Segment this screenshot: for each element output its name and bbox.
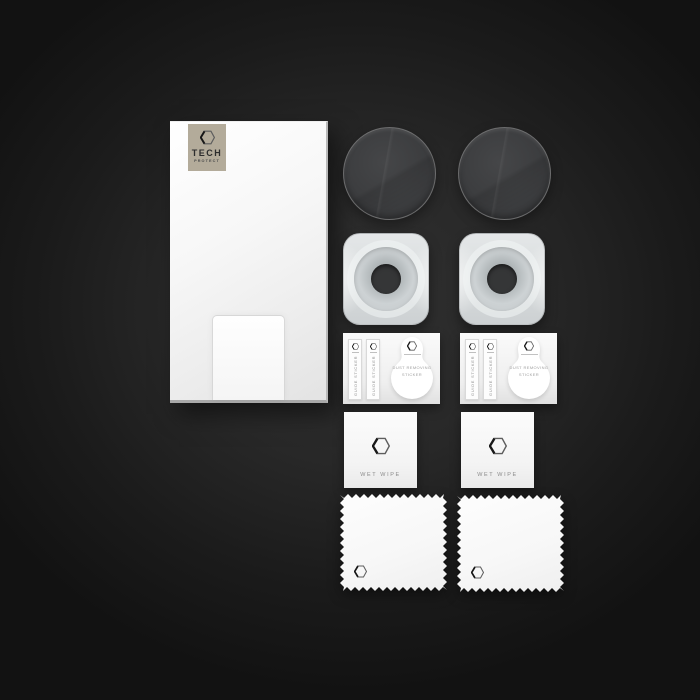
hexagon-logo-icon — [354, 565, 367, 578]
dust-removing-label: DUST REMOVING STICKER — [393, 365, 432, 379]
wet-wipe-label: WET WIPE — [477, 472, 518, 478]
protector-envelope: TECH PROTECT — [170, 121, 328, 403]
brand-hexagon-icon — [200, 130, 215, 145]
brand-badge: TECH PROTECT — [188, 124, 226, 171]
dust-removing-sticker: DUST REMOVING STICKER — [503, 335, 555, 401]
hexagon-logo-icon — [471, 566, 484, 579]
wet-wipe-1: WET WIPE — [344, 412, 417, 488]
microfiber-cloth-2 — [457, 495, 564, 592]
guide-sticker-label: GUIDE STICKER — [371, 353, 376, 399]
hexagon-logo-icon — [352, 343, 359, 350]
envelope-pull-tab — [212, 315, 285, 400]
guide-sticker-strip: GUIDE STICKER — [366, 339, 380, 400]
applicator-tray-1 — [343, 233, 429, 325]
guide-sticker-label: GUIDE STICKER — [488, 353, 493, 399]
hexagon-logo-icon — [489, 437, 507, 455]
stage: TECH PROTECT GUIDE STICKER — [0, 0, 700, 700]
dust-removing-label: DUST REMOVING STICKER — [510, 365, 549, 379]
lens-glass-2 — [458, 127, 551, 220]
sticker-sheet-2: GUIDE STICKER GUIDE STICKER DUST REMOVIN… — [460, 333, 557, 404]
dust-removing-line1: DUST REMOVING — [510, 365, 549, 370]
guide-sticker-label: GUIDE STICKER — [470, 353, 475, 399]
applicator-hole — [487, 264, 517, 294]
cloth-surface — [457, 495, 564, 592]
brand-name: TECH — [192, 149, 223, 158]
dust-removing-sticker: DUST REMOVING STICKER — [386, 335, 438, 401]
guide-sticker-strip: GUIDE STICKER — [348, 339, 362, 400]
wet-wipe-label: WET WIPE — [360, 472, 401, 478]
applicator-ring — [354, 247, 418, 311]
guide-sticker-strip: GUIDE STICKER — [483, 339, 497, 400]
applicator-hole — [371, 264, 401, 294]
hexagon-logo-icon — [469, 343, 476, 350]
sticker-sheet-1: GUIDE STICKER GUIDE STICKER DUST REMOVIN… — [343, 333, 440, 404]
applicator-tray-2 — [459, 233, 545, 325]
divider — [404, 354, 421, 355]
hexagon-logo-icon — [487, 343, 494, 350]
brand-subname: PROTECT — [194, 160, 220, 164]
hexagon-logo-icon — [524, 341, 534, 351]
lens-glass-1 — [343, 127, 436, 220]
hexagon-logo-icon — [370, 343, 377, 350]
hexagon-logo-icon — [407, 341, 417, 351]
guide-sticker-strip: GUIDE STICKER — [465, 339, 479, 400]
cloth-surface — [340, 494, 447, 591]
dust-removing-line2: STICKER — [519, 372, 539, 377]
divider — [521, 354, 538, 355]
dust-removing-line2: STICKER — [402, 372, 422, 377]
dust-removing-line1: DUST REMOVING — [393, 365, 432, 370]
applicator-ring — [470, 247, 534, 311]
microfiber-cloth-1 — [340, 494, 447, 591]
guide-sticker-label: GUIDE STICKER — [353, 353, 358, 399]
hexagon-logo-icon — [372, 437, 390, 455]
wet-wipe-2: WET WIPE — [461, 412, 534, 488]
